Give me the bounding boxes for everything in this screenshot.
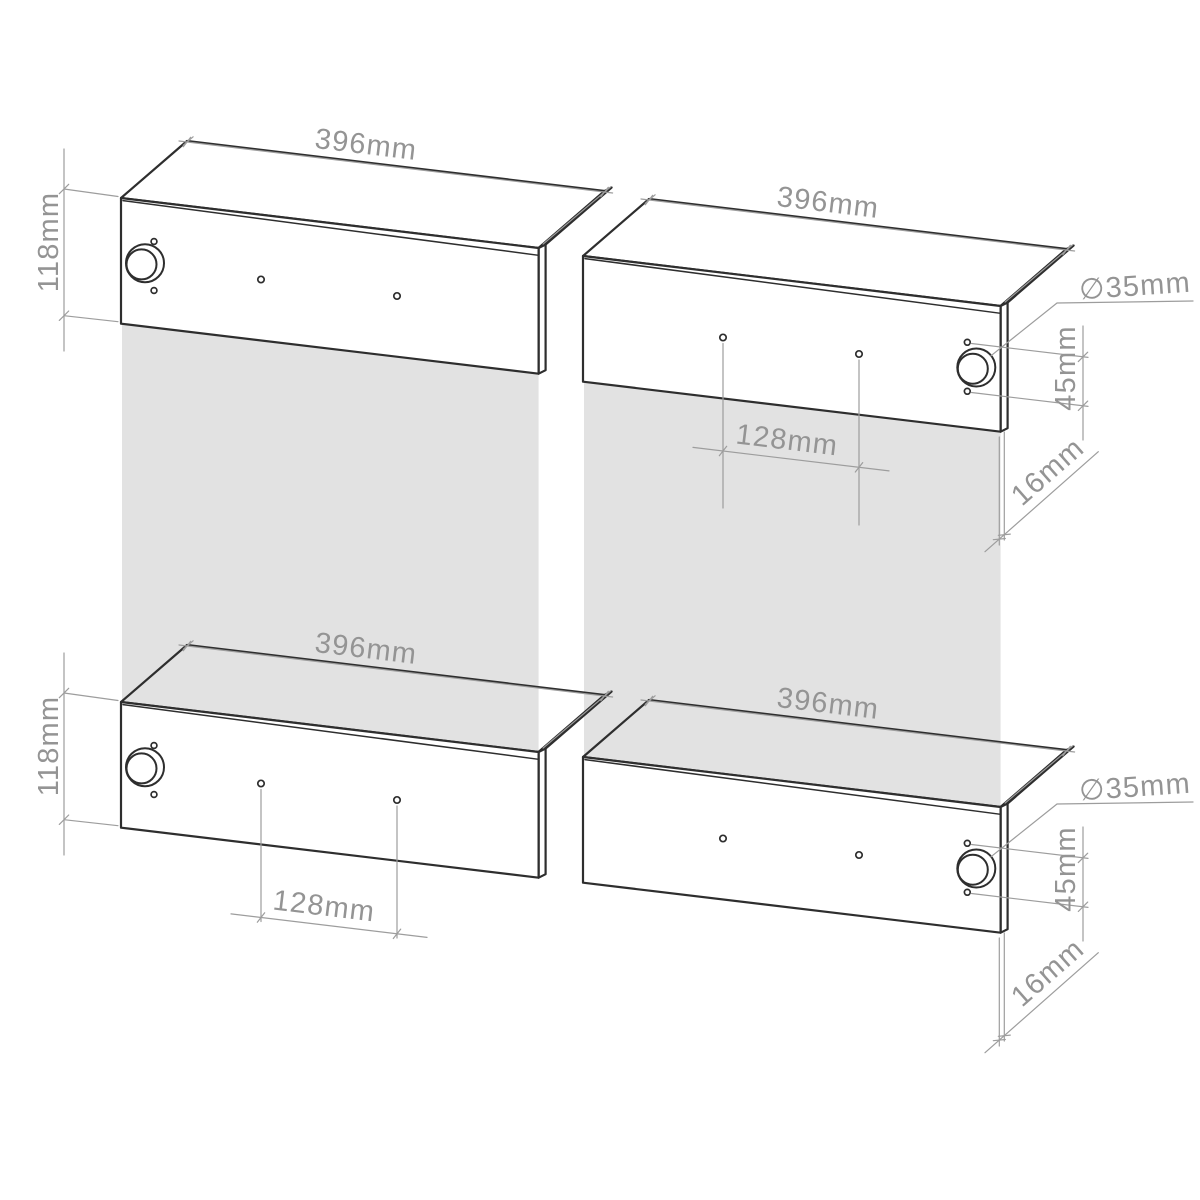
dim-label-width-top-right: 396mm — [775, 181, 881, 225]
dim-thickness-top-right: 16mm — [985, 432, 1098, 552]
dim-label-height-top-left: 118mm — [33, 192, 65, 293]
dim-label-hinge-diameter-bottom-right: ∅35mm — [1078, 768, 1192, 808]
dim-label-thickness-bottom-right: 16mm — [1005, 933, 1090, 1013]
dim-height-top-left: 118mm — [33, 149, 118, 351]
dim-label-screw-spacing-top-right: 45mm — [1050, 325, 1082, 410]
drawing-canvas: 396mm396mm396mm396mm118mm118mm128mm128mm… — [0, 0, 1200, 1200]
dim-label-hole-spacing-bottom-left: 128mm — [271, 885, 377, 929]
dim-height-bottom-left: 118mm — [33, 653, 118, 855]
shadow-left-column — [122, 324, 539, 752]
dim-hinge-diameter-top-right: ∅35mm — [991, 267, 1193, 356]
dim-label-screw-spacing-bottom-right: 45mm — [1050, 826, 1082, 911]
dim-label-height-bottom-left: 118mm — [33, 696, 65, 797]
technical-drawing: 396mm396mm396mm396mm118mm118mm128mm128mm… — [0, 0, 1200, 1200]
dim-label-thickness-top-right: 16mm — [1005, 432, 1090, 512]
dim-label-hinge-diameter-top-right: ∅35mm — [1078, 267, 1192, 307]
dim-label-width-top-left: 396mm — [313, 123, 419, 167]
dim-thickness-bottom-right: 16mm — [985, 933, 1098, 1053]
dim-hinge-diameter-bottom-right: ∅35mm — [991, 768, 1193, 857]
